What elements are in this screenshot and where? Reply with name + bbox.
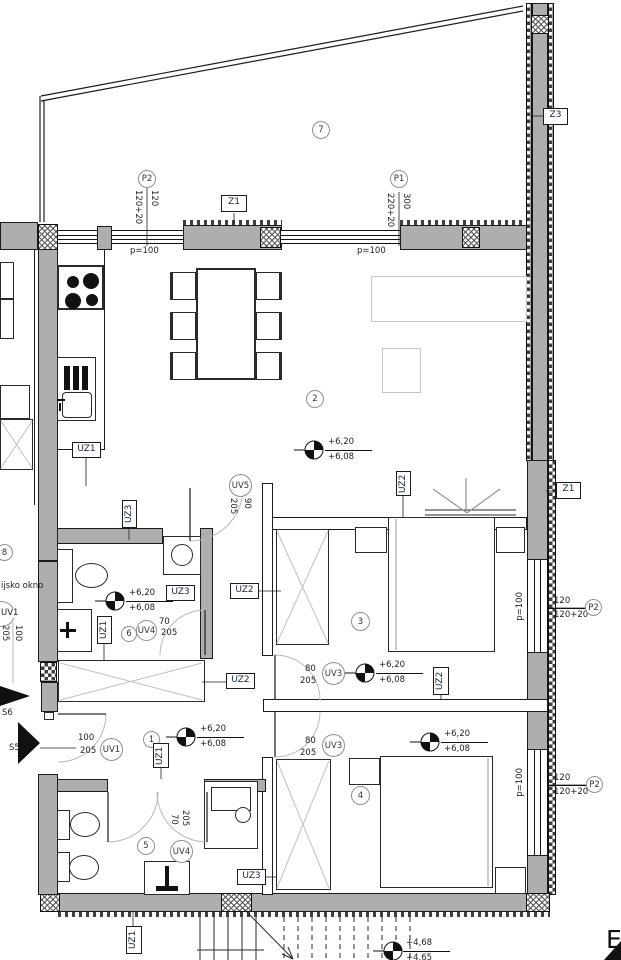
window-dim: 120+20 bbox=[554, 610, 588, 620]
window-tag-p1-top: P1 bbox=[390, 170, 408, 188]
section-label-s5: S5 bbox=[9, 743, 20, 753]
neighbor-fixture bbox=[0, 385, 30, 419]
chair bbox=[256, 352, 282, 380]
entry-door-jamb bbox=[41, 682, 58, 712]
window-right-lower bbox=[527, 750, 548, 855]
door-dim: 205 bbox=[80, 746, 96, 756]
window-dim: 120 bbox=[554, 773, 570, 783]
door-tag-label: UV3 bbox=[325, 741, 342, 751]
level-rule bbox=[376, 673, 423, 674]
door-dim: 205 bbox=[300, 748, 316, 758]
shelf-and-antenna bbox=[425, 478, 516, 515]
window-dim: 220+20 bbox=[385, 193, 395, 227]
window-tag-label: P2 bbox=[142, 174, 153, 184]
room-number: 5 bbox=[143, 841, 148, 851]
window-tag-label: P2 bbox=[589, 780, 600, 790]
toilet5-bowl bbox=[69, 855, 99, 880]
window-tag-label: P2 bbox=[588, 603, 599, 613]
level-lower-stairs: +4,65 bbox=[406, 953, 432, 960]
room-tag-bed3: 3 bbox=[351, 612, 370, 631]
door-dim: 70 bbox=[159, 617, 170, 627]
kitchen-sink-unit bbox=[57, 357, 96, 421]
wall-bottom bbox=[40, 893, 550, 912]
door-tag-uv3-bed4: UV3 bbox=[322, 734, 345, 757]
door-dim: 90 bbox=[242, 498, 252, 509]
wall-bath6-right bbox=[200, 528, 213, 659]
wall-tag-uz3: UZ3 bbox=[237, 869, 266, 885]
wall-crosshatch-block bbox=[526, 893, 550, 912]
wall-right-upper bbox=[527, 460, 548, 560]
wall-beds-divider bbox=[263, 699, 548, 712]
level-lower: +6,08 bbox=[379, 675, 405, 685]
door-tag-uv5: UV5 bbox=[229, 474, 252, 497]
chair bbox=[256, 312, 282, 340]
window-tag-p2-right-lower: P2 bbox=[586, 776, 603, 793]
chair bbox=[170, 272, 196, 300]
bed3-nightstand-right bbox=[496, 527, 525, 553]
wall-tag-uz1: UZ1 bbox=[72, 442, 101, 458]
door-tag-label: UV5 bbox=[232, 481, 249, 491]
door-dim: 100 bbox=[78, 733, 94, 743]
kitchen-counter-edge bbox=[104, 249, 105, 450]
wall-tag-uz2: UZ2 bbox=[230, 583, 259, 599]
level-lower: +6,08 bbox=[200, 739, 226, 749]
window-top-2 bbox=[112, 230, 183, 244]
level-rule bbox=[441, 742, 488, 743]
dish-drainer-bar bbox=[82, 366, 88, 390]
window-right-upper bbox=[527, 560, 548, 652]
door-dim: 205 bbox=[0, 625, 10, 641]
dim-rule bbox=[549, 785, 586, 786]
dish-drainer-bar bbox=[73, 366, 79, 390]
level-lower: +6,08 bbox=[328, 452, 354, 462]
corner-letter: E bbox=[606, 925, 621, 954]
washing-machine-drum bbox=[171, 544, 193, 566]
burner bbox=[83, 273, 99, 289]
door-tag-uv3-bed3: UV3 bbox=[322, 662, 345, 685]
burner bbox=[67, 276, 79, 288]
faucet bbox=[57, 399, 65, 401]
neighbor-cabinet bbox=[0, 299, 14, 339]
door-dim: 80 bbox=[305, 736, 316, 746]
sofa-outline bbox=[371, 276, 527, 322]
door-dim: 80 bbox=[305, 664, 316, 674]
wall-corridor-east-upper bbox=[262, 483, 273, 656]
wall-tag-uz2: UZ2 bbox=[226, 673, 255, 689]
parapet-note: p=100 bbox=[130, 246, 159, 256]
bidet-bowl bbox=[70, 812, 100, 837]
wall-tag-uz2-vert: UZ2 bbox=[396, 471, 411, 496]
wall-insulation-teeth bbox=[58, 912, 550, 917]
entry-door-head bbox=[44, 712, 54, 720]
door-dim: 100 bbox=[13, 625, 23, 641]
room-tag-bed4: 4 bbox=[351, 786, 370, 805]
window-tag-p2-right-upper: P2 bbox=[585, 599, 602, 616]
door-tag-uv4-bath6: UV4 bbox=[136, 620, 157, 641]
window-dim: 120 bbox=[554, 596, 570, 606]
room-number: 3 bbox=[358, 617, 363, 627]
wall-crosshatch-block bbox=[221, 893, 252, 912]
wall-insulation-strip bbox=[548, 460, 556, 895]
window-tag-z3: Z3 bbox=[543, 108, 568, 125]
door-dim: 205 bbox=[180, 810, 190, 826]
room-number: 4 bbox=[358, 791, 363, 801]
bed3-nightstand-left bbox=[355, 527, 387, 553]
bed4-wardrobe bbox=[276, 759, 331, 890]
room-number: 2 bbox=[312, 394, 317, 404]
burner bbox=[86, 294, 98, 306]
wall-bath5-top-left bbox=[57, 779, 108, 792]
room-number: 7 bbox=[318, 125, 323, 135]
window-dim: 300 bbox=[401, 193, 411, 209]
wall-tag-uz1-vert: UZ1 bbox=[153, 743, 169, 768]
wall-top-left-stub bbox=[0, 222, 38, 250]
toilet-bowl bbox=[75, 563, 108, 588]
neighbor-cabinet bbox=[0, 262, 14, 299]
window-tag-z1-right: Z1 bbox=[556, 482, 581, 499]
level-upper: +6,20 bbox=[200, 724, 226, 734]
burner bbox=[65, 293, 81, 309]
level-lower: +6,08 bbox=[129, 603, 155, 613]
room-tag-bath6: 6 bbox=[121, 626, 137, 642]
wall-left-bath bbox=[38, 774, 58, 895]
level-rule bbox=[325, 450, 372, 451]
room-tag-terrace: 7 bbox=[312, 121, 330, 139]
level-rule bbox=[197, 737, 244, 738]
chair bbox=[170, 312, 196, 340]
cooktop bbox=[57, 265, 104, 310]
door-tag-label: UV1 bbox=[1, 608, 18, 618]
wall-crosshatch-block bbox=[462, 227, 480, 248]
wall-left-kitchen bbox=[38, 249, 58, 561]
neighbor-wall-line bbox=[34, 249, 35, 505]
dish-drainer-bar bbox=[64, 366, 70, 390]
level-lower: +6,08 bbox=[444, 744, 470, 754]
wall-pier bbox=[97, 226, 112, 250]
dim-rule bbox=[549, 608, 586, 609]
bed4-nightstand-left bbox=[349, 758, 380, 785]
door-tag-label: UV1 bbox=[103, 745, 120, 755]
terrace-railing bbox=[40, 6, 523, 222]
level-rule bbox=[403, 951, 450, 952]
room-tag-living: 2 bbox=[306, 390, 324, 408]
door-dim: 205 bbox=[161, 628, 177, 638]
door-tag-label: UV4 bbox=[138, 626, 155, 636]
window-dim: 120 bbox=[149, 190, 159, 206]
bed4 bbox=[380, 756, 493, 888]
bath6-faucet-cross bbox=[66, 622, 69, 638]
window-dim: 120+20 bbox=[133, 190, 143, 224]
neighbor-wardrobe bbox=[0, 419, 33, 470]
wall-insulation-strip bbox=[548, 3, 554, 461]
window-top-3 bbox=[281, 230, 400, 244]
parapet-note: p=100 bbox=[357, 246, 386, 256]
wall-left-mid bbox=[38, 561, 58, 662]
window-tag-z1-top: Z1 bbox=[221, 195, 247, 212]
door-tag-uv1-entry: UV1 bbox=[100, 738, 123, 761]
level-rule bbox=[126, 601, 173, 602]
wall-right-column bbox=[532, 3, 548, 461]
bed3 bbox=[388, 517, 495, 652]
wall-crosshatch-block bbox=[38, 224, 58, 250]
wall-bath6-top bbox=[57, 528, 163, 544]
window-tag-p2-top: P2 bbox=[138, 170, 156, 188]
parapet-note: p=100 bbox=[515, 592, 525, 621]
shower-drain bbox=[235, 807, 251, 823]
sink-basin bbox=[62, 392, 92, 418]
wall-tag-uz1-vert: UZ1 bbox=[126, 926, 142, 954]
room-tag-bath5: 5 bbox=[137, 837, 155, 855]
level-upper-stairs: +4,68 bbox=[406, 938, 432, 948]
wall-tag-uz2-vert: UZ2 bbox=[433, 667, 449, 695]
bath5-faucet-t bbox=[156, 886, 178, 891]
room-number: 6 bbox=[126, 629, 131, 639]
section-label-s6: S6 bbox=[2, 708, 13, 718]
window-dim: 120+20 bbox=[554, 787, 588, 797]
door-dim: 205 bbox=[300, 676, 316, 686]
door-tag-uv4-bath5: UV4 bbox=[170, 840, 193, 863]
bed3-wardrobe bbox=[276, 529, 329, 645]
faucet bbox=[59, 403, 61, 411]
door-tag-label: UV4 bbox=[173, 847, 190, 857]
hall-closet bbox=[58, 660, 205, 702]
bidet-tank bbox=[57, 810, 70, 840]
door-dim: 70 bbox=[169, 814, 179, 825]
floor-plan: P2 120+20 120 Z1 P1 220+20 300 p=100 p=1… bbox=[0, 0, 621, 960]
parapet-note: p=100 bbox=[515, 768, 525, 797]
window-tag-label: P1 bbox=[394, 174, 405, 184]
wall-tag-uz3-vert: UZ3 bbox=[122, 500, 137, 528]
bed4-nightstand-right bbox=[495, 867, 526, 894]
wall-tag-uz3: UZ3 bbox=[166, 585, 195, 601]
door-tag-label: UV3 bbox=[325, 669, 342, 679]
level-upper: +6,20 bbox=[444, 729, 470, 739]
room-tag-neighbor: 8 bbox=[0, 544, 13, 561]
level-upper: +6,20 bbox=[328, 437, 354, 447]
wall-right-lower bbox=[527, 855, 548, 895]
window-top-1 bbox=[58, 230, 98, 244]
wall-crosshatch-block bbox=[40, 893, 60, 912]
chair bbox=[256, 272, 282, 300]
wall-tag-uz1-vert: UZ1 bbox=[97, 616, 112, 644]
level-upper: +6,20 bbox=[129, 588, 155, 598]
side-table-outline bbox=[382, 348, 421, 393]
wall-crosshatch-block bbox=[260, 227, 281, 248]
toilet-tank bbox=[57, 549, 73, 603]
room-number: 8 bbox=[2, 548, 7, 558]
door-dim: 205 bbox=[228, 498, 238, 514]
bath5-faucet-t bbox=[165, 866, 169, 888]
dining-table bbox=[196, 268, 256, 380]
chair bbox=[170, 352, 196, 380]
wall-crosshatch-block bbox=[531, 15, 549, 34]
window-note: ijsko okno bbox=[1, 581, 43, 591]
wall-insulation-endcap bbox=[40, 662, 57, 682]
level-upper: +6,20 bbox=[379, 660, 405, 670]
